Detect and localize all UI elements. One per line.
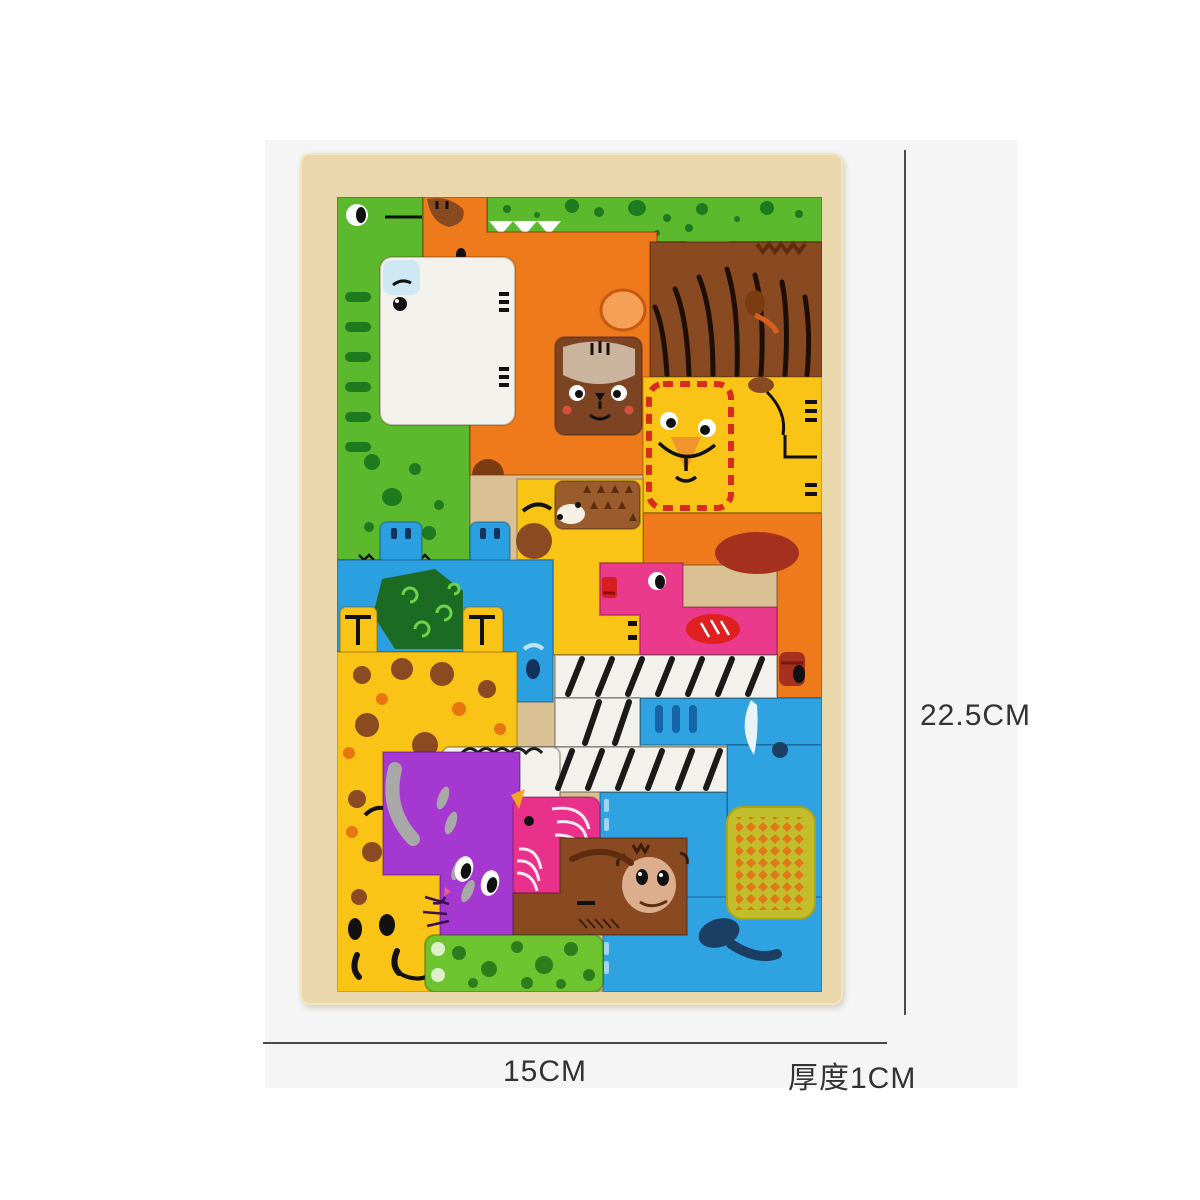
monkey-eye-left <box>636 869 648 885</box>
frog-piece <box>425 935 603 992</box>
height-dimension-line <box>904 150 906 1015</box>
flamingo-wing <box>686 614 740 644</box>
lion-piece <box>643 377 822 513</box>
tiger-acorn <box>745 290 765 316</box>
orange-elephant-eye <box>793 665 805 683</box>
frog-eye-bottom <box>431 968 445 982</box>
flamingo-beak <box>602 577 617 598</box>
horse-log <box>601 290 645 330</box>
lion-tail <box>748 377 774 393</box>
giraffe-eye-left <box>348 918 362 940</box>
mat-piece <box>727 807 815 919</box>
turtle-leg-left <box>380 522 422 564</box>
width-dimension-line <box>263 1042 887 1044</box>
width-dimension-label: 15CM <box>503 1055 587 1089</box>
polar-bear-eye <box>393 297 407 311</box>
hedgehog-piece <box>555 481 640 529</box>
height-dimension-label: 22.5CM <box>920 699 1031 733</box>
product-photo: 22.5CM 15CM 厚度1CM <box>0 0 1200 1200</box>
polar-bear-piece <box>380 257 515 425</box>
orange-elephant-ear <box>715 532 799 574</box>
puzzle-pieces <box>337 197 822 992</box>
giraffe-eye-right <box>379 914 395 936</box>
puzzle-board-inner <box>337 197 822 992</box>
mat-diamond-grid <box>736 817 807 910</box>
frog-eye-top <box>431 942 445 956</box>
hedgehog-snout <box>557 504 585 524</box>
bird-eye <box>524 816 534 826</box>
turtle-eye <box>526 659 540 679</box>
puzzle-board <box>300 153 843 1005</box>
giraffe-neck-muzzle <box>516 523 552 559</box>
turtle-leg-right <box>470 522 510 564</box>
thickness-dimension-label: 厚度1CM <box>788 1053 916 1097</box>
monkey-eye-right <box>657 870 669 886</box>
polar-bear-ear <box>383 260 420 295</box>
blue-elephant-eye <box>772 742 788 758</box>
blue-elephant-bars <box>655 705 697 733</box>
hedgehog-eye <box>575 502 581 508</box>
